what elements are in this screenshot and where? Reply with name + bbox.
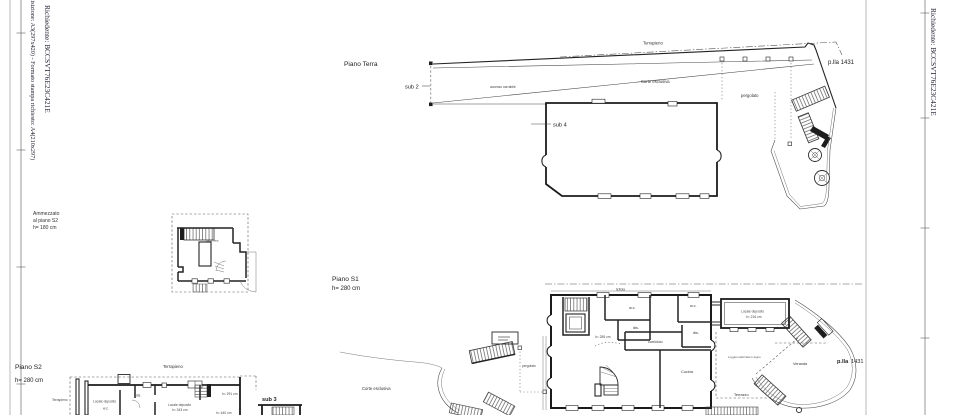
loggia-label: Loggia realizzata in legno [728, 355, 761, 359]
external-stairs-pt [775, 86, 831, 148]
wc-right-label: w.c. [690, 304, 697, 308]
terrace-s1: Loggia realizzata in legno Veranda Terra… [706, 300, 863, 415]
mezzanine-windows [192, 279, 230, 283]
piano-terra-sub4-label: sub 4 [553, 123, 567, 129]
deposito-b-line1-s2: Locale deposito [168, 403, 191, 407]
piano-s2-height: h= 280 cm [15, 378, 43, 384]
deposito-a-label-s2: Locale deposito [93, 400, 116, 404]
internal-stair-s1 [595, 365, 618, 396]
mezzanine-note-line3: h= 180 cm [33, 225, 57, 231]
deposito-s1-line1: Locale deposito [741, 310, 764, 314]
h285-label: h= 285 cm [595, 335, 611, 339]
building-niches-pt [542, 150, 721, 167]
deposito-s1: Locale deposito h= 216 cm [711, 299, 789, 332]
margin-notes: Acquisizione: A3(297x420) - Formato stam… [29, 0, 938, 160]
courtyard-s1: Corte esclusiva pergolato [340, 332, 547, 415]
accesso-carrabile-label: accesso carrabile [490, 85, 516, 89]
piano-s1-height: h= 280 cm [332, 286, 360, 292]
pergolato-label-pt: pergolato [741, 93, 759, 98]
h440-label-s2: h= 440 cm [216, 411, 232, 415]
mezzanine-plan: balconata [172, 214, 256, 292]
terrazzo-label: Terrazzo [734, 393, 749, 397]
wc-left-label: w.c. [629, 306, 636, 310]
left-format-note: Acquisizione: A3(297x420) - Formato stam… [29, 0, 36, 160]
terrapieno-top-label-s2: Terrapieno [163, 364, 183, 369]
terrace-wells-pt [809, 149, 830, 186]
tettoia-label: tettoia [616, 288, 625, 292]
particella-label-s1: p.lla [837, 359, 849, 365]
building-niches-s1 [547, 315, 715, 391]
cucina-label: Cucina [681, 370, 694, 374]
terrapieno-left-label-s2: Terrapieno [52, 398, 68, 402]
mezzanine-note-line1: Ammezzato [33, 211, 60, 217]
piano-s1-title: Piano S1 [332, 276, 359, 283]
wc-label-s2: w.c. [103, 407, 109, 411]
deposito-s1-line2: h= 216 cm [746, 315, 762, 319]
piano-terra-title: Piano Terra [344, 61, 378, 68]
partitions-s1 [595, 295, 711, 408]
right-requester-note: Richiedente: BCCSVT76E23C421E [929, 8, 938, 116]
corte-esclusiva-label-s1: Corte esclusiva [362, 386, 391, 391]
pergolato-label-s1: pergolato [522, 364, 536, 368]
piano-terra-sub2-label: sub 2 [405, 85, 419, 91]
dis-right-label: dis. [693, 331, 699, 335]
adjacent-plan-fragment [258, 405, 302, 415]
cadastral-floor-plan: Acquisizione: A3(297x420) - Formato stam… [0, 0, 960, 415]
corte-esclusiva-label-pt: Corte esclusiva [641, 79, 670, 84]
piano-terra: Piano Terra sub 2 accesso carrabile Terr… [344, 39, 855, 209]
piano-s2-sub3-label: sub 3 [262, 397, 277, 403]
mezzanine-note-line2: al piano S2 [33, 218, 58, 224]
left-requester-note: Richiedente: BCCSVT76E23C421E [43, 5, 52, 113]
particella-num-s1: 1431 [851, 359, 863, 365]
stairwell-s1 [563, 297, 589, 335]
h291-label-s2: h= 291 cm [222, 392, 238, 396]
deposito-b-line2-s2: h= 343 cm [172, 408, 188, 412]
mezzanine-note: Ammezzato al piano S2 h= 180 cm [33, 211, 60, 231]
piano-s1: Piano S1 h= 280 cm tettoia [332, 276, 863, 415]
terrapieno-label-pt: Terrapieno [643, 41, 663, 46]
corridoio-label: corridoio [648, 340, 663, 344]
veranda-label: Veranda [793, 362, 808, 366]
piano-s2: Piano S2 h= 280 cm Terrapieno Terrapieno… [15, 364, 302, 415]
dis-label-s2: dis. [136, 394, 141, 398]
dis-left-label: dis. [633, 326, 639, 330]
piano-s2-title: Piano S2 [15, 364, 42, 371]
particella-label-pt: p.lla 1431 [828, 60, 855, 66]
